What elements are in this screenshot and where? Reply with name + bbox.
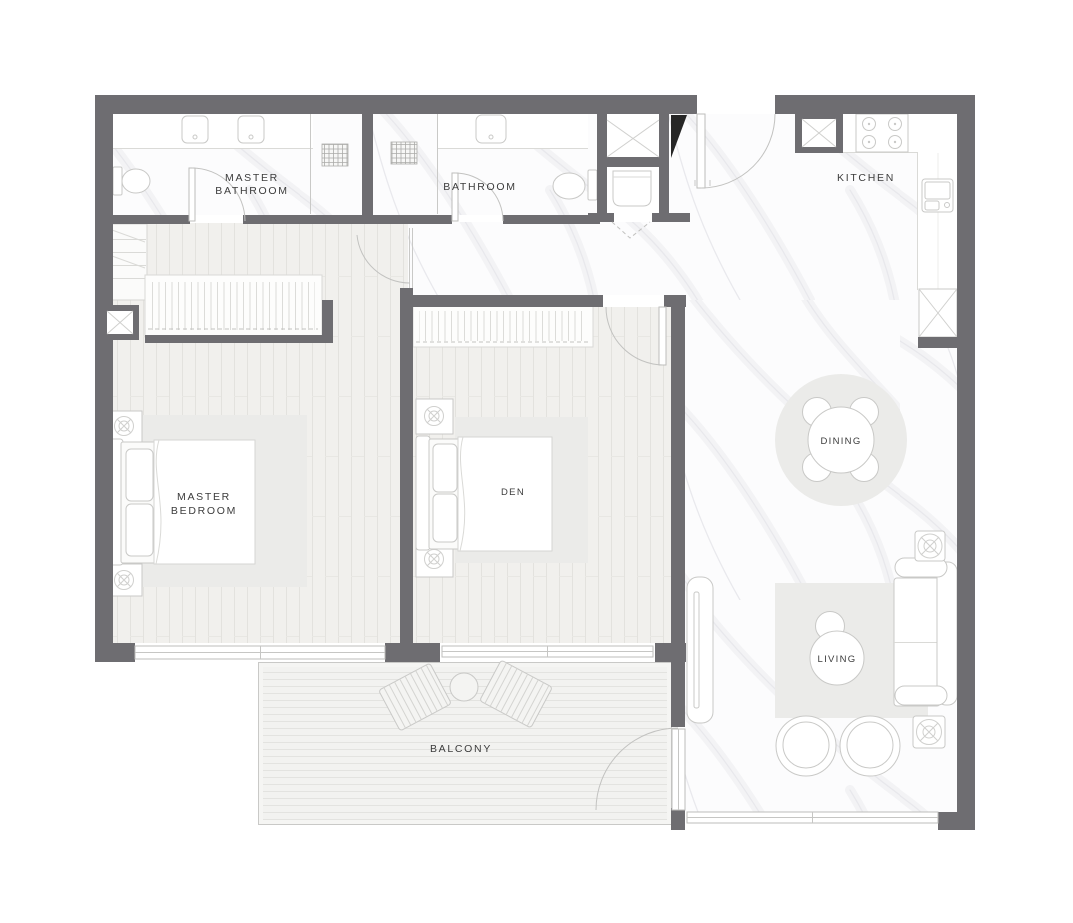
shaft-icon <box>607 120 659 157</box>
den-label: DEN <box>501 487 525 498</box>
plant-table <box>913 716 945 748</box>
hallway-floor <box>408 222 685 295</box>
master-bathroom-label: BATHROOM <box>215 185 289 197</box>
sofa <box>894 558 957 706</box>
floor-plan: MASTER BATHROOM BATHROOM KITCHEN MASTER … <box>0 0 1073 923</box>
window <box>687 812 938 823</box>
fridge-icon <box>919 289 957 337</box>
armchair <box>840 716 900 776</box>
vanity-counter <box>113 114 313 148</box>
hangers-icon <box>419 311 586 341</box>
shower-drain-icon <box>391 142 417 164</box>
window <box>442 646 653 657</box>
entry-closet <box>607 167 659 212</box>
shaft-icon <box>802 119 836 147</box>
hangers-icon <box>151 282 315 330</box>
door-leaf <box>697 114 705 188</box>
den-bed <box>416 436 552 551</box>
pillow <box>433 494 457 542</box>
pillow <box>126 504 153 556</box>
living-label: LIVING <box>818 654 857 665</box>
dining-label: DINING <box>820 436 861 447</box>
toilet-tank <box>113 167 122 195</box>
tv-console <box>687 577 713 723</box>
vanity-counter <box>438 114 588 148</box>
den-closet <box>413 305 593 347</box>
master-bathroom-label: MASTER <box>225 172 279 184</box>
sofa-armrest <box>895 686 947 705</box>
floor-plan-page: MASTER BATHROOM BATHROOM KITCHEN MASTER … <box>0 0 1073 923</box>
toilet-tank <box>588 170 597 200</box>
closet-fixture <box>613 171 651 206</box>
balcony-table <box>450 673 478 701</box>
master-bedroom-furniture <box>107 411 307 596</box>
toilet-icon <box>553 173 585 199</box>
kitchen-label: KITCHEN <box>837 172 895 184</box>
window <box>135 646 385 659</box>
balcony-label: BALCONY <box>430 743 492 755</box>
shower-drain-icon <box>322 144 348 166</box>
master-bedroom-label: MASTER <box>177 491 231 503</box>
armchair <box>776 716 836 776</box>
pillow <box>433 444 457 492</box>
toilet-icon <box>122 169 150 193</box>
bathroom-label: BATHROOM <box>443 181 517 193</box>
shaft-icon <box>107 311 133 334</box>
plant-table <box>915 531 945 561</box>
pillow <box>126 449 153 501</box>
door-leaf <box>659 307 666 365</box>
door-leaf <box>189 168 195 221</box>
headboard <box>416 436 430 550</box>
master-bedroom-label: BEDROOM <box>171 505 237 517</box>
sofa-back <box>937 562 957 705</box>
